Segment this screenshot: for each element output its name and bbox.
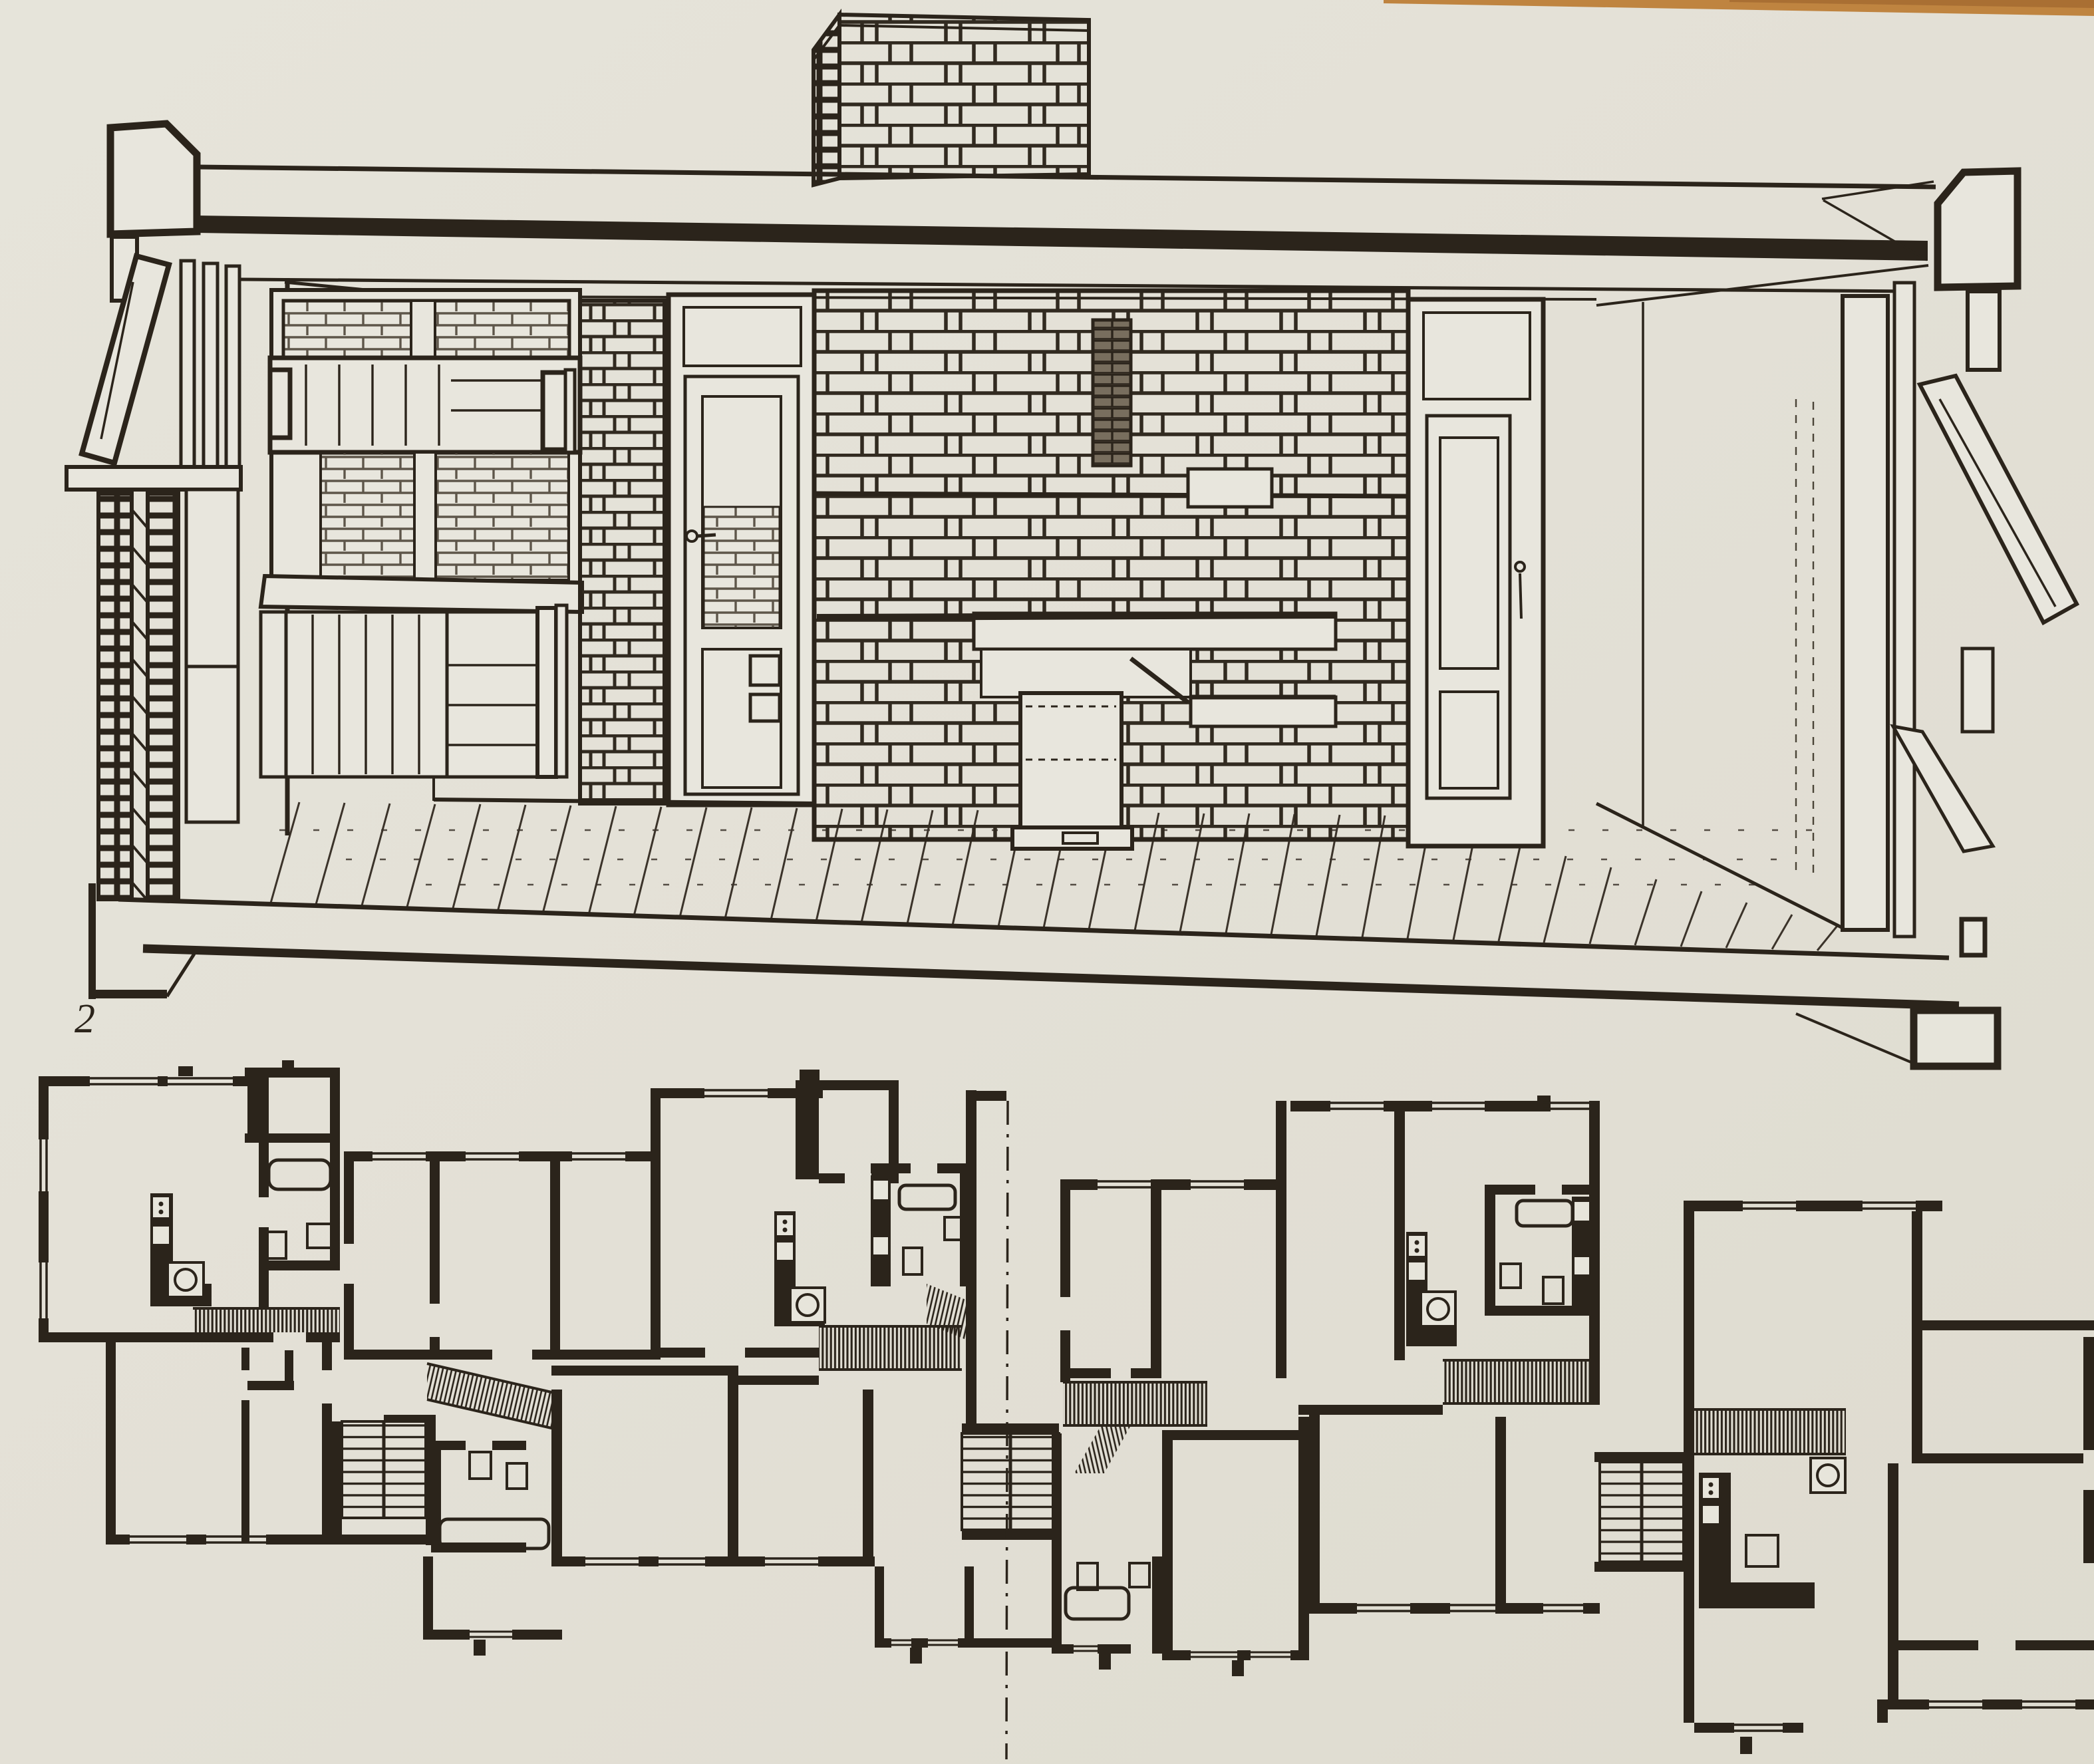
svg-text:2: 2 [75, 996, 95, 1042]
